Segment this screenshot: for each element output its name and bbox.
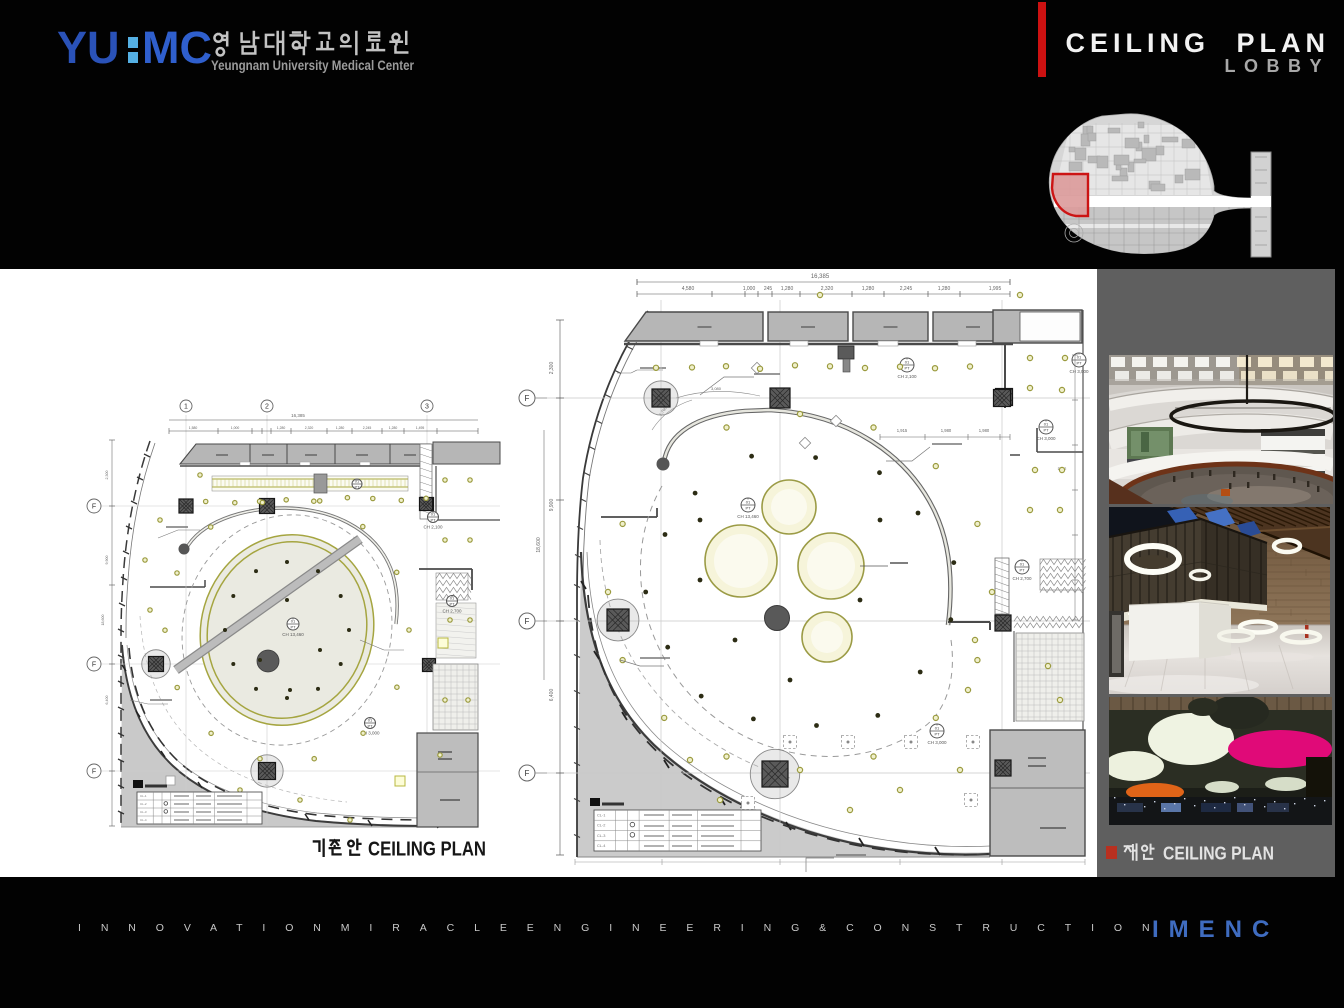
svg-text:01: 01 <box>431 512 436 517</box>
svg-text:01: 01 <box>1044 422 1049 427</box>
svg-text:01: 01 <box>746 500 751 505</box>
svg-text:245: 245 <box>764 286 773 292</box>
svg-text:Yeungnam University Medical Ce: Yeungnam University Medical Center <box>211 58 415 73</box>
svg-text:6,400: 6,400 <box>105 696 109 705</box>
svg-text:1: 1 <box>184 404 188 411</box>
svg-text:2,300: 2,300 <box>105 471 109 480</box>
svg-text:1,980: 1,980 <box>941 428 952 433</box>
svg-text:CEILING PLAN: CEILING PLAN <box>368 839 486 861</box>
svg-text:PT: PT <box>1019 568 1025 573</box>
svg-text:2,320: 2,320 <box>305 426 314 430</box>
svg-text:CEILING PLAN: CEILING PLAN <box>1163 844 1274 864</box>
svg-text:18,600: 18,600 <box>536 537 542 553</box>
svg-text:3,080: 3,080 <box>711 386 722 391</box>
svg-text:1,280: 1,280 <box>862 286 875 292</box>
svg-text:01: 01 <box>355 479 360 484</box>
svg-text:CH 2,100: CH 2,100 <box>423 525 443 530</box>
svg-text:1,980: 1,980 <box>979 428 990 433</box>
svg-text:F: F <box>92 504 96 511</box>
svg-text:16,385: 16,385 <box>291 413 305 418</box>
svg-text:1,280: 1,280 <box>938 286 951 292</box>
svg-text:PT: PT <box>290 625 296 630</box>
svg-text:PT: PT <box>430 518 436 523</box>
svg-text:PT: PT <box>745 506 751 511</box>
svg-text:1,280: 1,280 <box>781 286 794 292</box>
svg-text:CL-4: CL-4 <box>597 843 606 848</box>
svg-text:CH 13,460: CH 13,460 <box>282 632 304 637</box>
svg-text:01: 01 <box>368 718 373 723</box>
svg-text:2: 2 <box>265 404 269 411</box>
svg-text:1,280: 1,280 <box>389 426 398 430</box>
svg-text:PT: PT <box>1043 428 1049 433</box>
svg-text:PT: PT <box>934 732 940 737</box>
svg-text:PT: PT <box>904 366 910 371</box>
svg-text:1,280: 1,280 <box>277 426 286 430</box>
svg-text:4,580: 4,580 <box>682 286 695 292</box>
svg-text:F: F <box>92 662 96 669</box>
svg-text:CH 3,000: CH 3,000 <box>927 740 947 745</box>
svg-text:3: 3 <box>425 404 429 411</box>
svg-text:CL-1: CL-1 <box>140 794 147 798</box>
svg-text:PT: PT <box>449 602 455 607</box>
svg-text:F: F <box>525 617 530 626</box>
svg-text:PT: PT <box>367 724 373 729</box>
svg-text:CL-2: CL-2 <box>140 802 147 806</box>
svg-text:9,900: 9,900 <box>549 499 555 512</box>
svg-text:9,900: 9,900 <box>105 556 109 565</box>
svg-text:CH 2,700: CH 2,700 <box>442 609 462 614</box>
svg-text:CH 3,000: CH 3,000 <box>1036 436 1056 441</box>
svg-text:01: 01 <box>1020 562 1025 567</box>
svg-text:1,000: 1,000 <box>231 426 240 430</box>
svg-text:6,400: 6,400 <box>549 689 555 702</box>
svg-text:CL-2: CL-2 <box>597 823 605 828</box>
svg-text:CH 3,000: CH 3,000 <box>1069 369 1089 374</box>
svg-text:2,320: 2,320 <box>821 286 834 292</box>
svg-text:CL-3: CL-3 <box>140 810 147 814</box>
svg-text:1,495: 1,495 <box>416 426 425 430</box>
svg-text:2,245: 2,245 <box>900 286 913 292</box>
svg-text:2,245: 2,245 <box>363 426 372 430</box>
svg-text:PT: PT <box>354 485 360 490</box>
svg-text:01: 01 <box>450 596 455 601</box>
svg-text:01: 01 <box>935 726 940 731</box>
svg-text:CL-3: CL-3 <box>597 833 605 838</box>
svg-text:16,385: 16,385 <box>811 274 830 280</box>
svg-text:F: F <box>525 769 530 778</box>
svg-text:1,580: 1,580 <box>189 426 198 430</box>
svg-text:CH 13,460: CH 13,460 <box>737 514 759 519</box>
svg-text:18,600: 18,600 <box>101 615 105 626</box>
svg-text:1,995: 1,995 <box>989 286 1002 292</box>
svg-text:01: 01 <box>905 360 910 365</box>
svg-text:01: 01 <box>291 619 296 624</box>
svg-text:2,300: 2,300 <box>549 362 555 375</box>
svg-text:1,915: 1,915 <box>897 428 908 433</box>
svg-text:1,280: 1,280 <box>336 426 345 430</box>
svg-text:CL-1: CL-1 <box>597 812 605 817</box>
svg-text:CH 2,700: CH 2,700 <box>1012 576 1032 581</box>
svg-text:F: F <box>525 394 530 403</box>
svg-text:CL-4: CL-4 <box>140 818 147 822</box>
svg-text:PT: PT <box>1076 361 1082 366</box>
svg-text:CH 2,100: CH 2,100 <box>897 374 917 379</box>
svg-text:F: F <box>92 769 96 776</box>
